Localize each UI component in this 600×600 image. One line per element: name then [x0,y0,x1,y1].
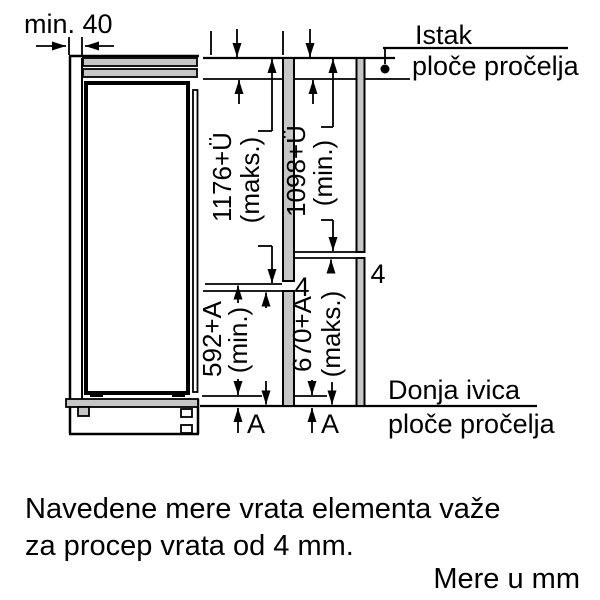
top-panel-strip-1 [83,58,197,66]
appliance-door [86,83,188,393]
note-line2: za procep vrata od 4 mm. [25,528,354,565]
dim-lower-left-qualifier: (min.) [223,307,253,373]
istak-label-line2: ploče pročelja [412,51,580,81]
istak-label-line1: Istak [415,20,473,50]
gap-label-right: 4 [370,259,385,289]
min-clearance-dimension [36,37,114,55]
dim-lower-right-qualifier: (maks.) [316,291,346,378]
door-panel-bar2-lower [357,258,365,406]
dim-lower-right-value: 670+A [287,295,317,372]
dim-upper-left-value: 1176+Ü [207,132,237,222]
note-line1: Navedene mere vrata elementa važe [25,491,501,528]
base-panel-strip [66,399,198,407]
foot-lower [181,425,192,433]
foot-upper [181,409,192,417]
donja-label-line1: Donja ivica [388,375,521,405]
plinth-block-left [78,407,89,416]
hinge-mark-left [90,392,103,397]
istak-leader-dot [381,65,390,74]
dim-upper-right-qualifier: (min.) [308,140,338,206]
installation-diagram: min. 40 Istak [0,0,600,460]
top-panel-strip-2 [83,69,197,77]
min-clearance-label: min. 40 [24,9,113,39]
door-panel-bar2-upper [357,58,365,252]
dim-upper-right-value: 1098+Ü [281,125,311,217]
gap-label-left: 4 [294,272,309,302]
donja-label-line2: ploče pročelja [388,409,556,439]
projection-dimension-marks [211,29,313,104]
hinge-mark-right [172,392,185,397]
units-note: Mere u mm [433,563,580,596]
dim-upper-left-qualifier: (maks.) [235,137,265,224]
dimension-diagram-page: min. 40 Istak [0,0,600,600]
a-dimension-label-left: A [247,409,265,439]
a-dimension-label-right: A [321,409,339,439]
